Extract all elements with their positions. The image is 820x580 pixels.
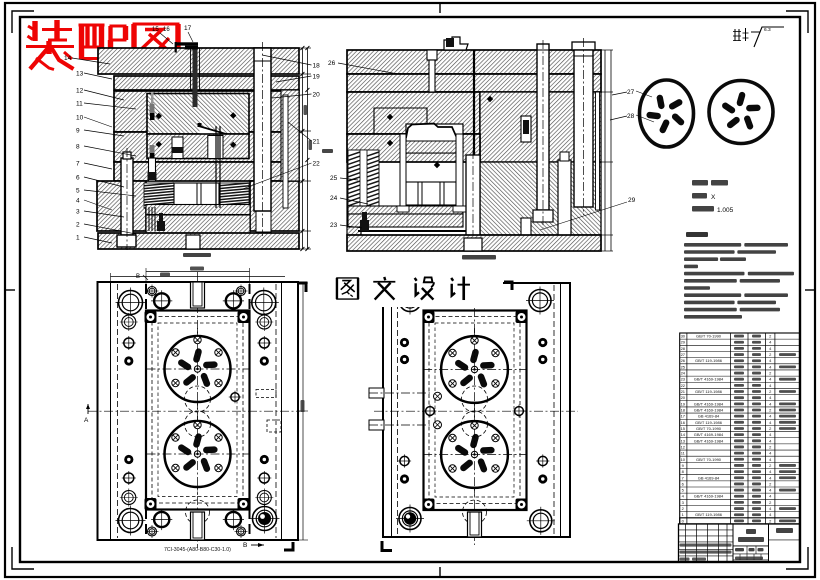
svg-text:14: 14 xyxy=(681,432,686,437)
svg-text:10: 10 xyxy=(681,457,686,462)
svg-text:28: 28 xyxy=(627,113,635,120)
svg-text:GB 4169-84: GB 4169-84 xyxy=(698,414,720,419)
svg-text:18: 18 xyxy=(313,63,321,70)
svg-text:17: 17 xyxy=(681,414,686,419)
svg-text:8: 8 xyxy=(76,144,80,151)
svg-text:10: 10 xyxy=(76,115,84,122)
svg-text:GB/T 119-1986: GB/T 119-1986 xyxy=(695,389,723,394)
svg-text:11: 11 xyxy=(76,101,83,108)
svg-text:GB/T 119-1986: GB/T 119-1986 xyxy=(695,420,723,425)
svg-text:GB/T 119-1986: GB/T 119-1986 xyxy=(695,358,723,363)
svg-text:GB 4169-84: GB 4169-84 xyxy=(698,475,720,480)
svg-text:A: A xyxy=(84,417,89,424)
svg-text:B: B xyxy=(136,274,140,280)
svg-text:28: 28 xyxy=(681,346,686,351)
svg-text:GB/T 4169-1984: GB/T 4169-1984 xyxy=(694,438,724,443)
svg-text:26: 26 xyxy=(681,358,686,363)
svg-text:29: 29 xyxy=(681,340,686,345)
svg-text:X: X xyxy=(711,194,716,201)
svg-text:GB/T 4169-1984: GB/T 4169-1984 xyxy=(694,494,724,499)
svg-text:24: 24 xyxy=(330,195,338,202)
svg-text:GB/T 119-1986: GB/T 119-1986 xyxy=(695,512,723,517)
svg-text:1.005: 1.005 xyxy=(717,207,734,214)
svg-text:GB/T 70-1990: GB/T 70-1990 xyxy=(696,457,722,462)
svg-text:27: 27 xyxy=(681,352,686,357)
svg-text:16: 16 xyxy=(163,27,170,33)
svg-text:15: 15 xyxy=(681,426,686,431)
svg-text:13: 13 xyxy=(76,71,84,78)
svg-text:GB/T 4169-1984: GB/T 4169-1984 xyxy=(694,432,724,437)
svg-text:21: 21 xyxy=(681,389,686,394)
svg-text:7: 7 xyxy=(76,161,80,168)
svg-text:18: 18 xyxy=(681,408,686,413)
svg-text:6.3: 6.3 xyxy=(764,27,771,33)
svg-text:27: 27 xyxy=(627,89,635,96)
svg-text:GB/T 4169-1984: GB/T 4169-1984 xyxy=(694,377,724,382)
svg-text:29: 29 xyxy=(628,197,636,204)
svg-text:22: 22 xyxy=(681,383,686,388)
svg-text:13: 13 xyxy=(681,438,686,443)
svg-text:GB/T 70-1990: GB/T 70-1990 xyxy=(696,426,722,431)
svg-text:14: 14 xyxy=(64,55,72,62)
svg-text:1: 1 xyxy=(76,235,80,242)
svg-text:4: 4 xyxy=(76,198,80,205)
svg-text:5: 5 xyxy=(76,188,80,195)
svg-text:12: 12 xyxy=(681,444,686,449)
svg-text:25: 25 xyxy=(681,364,686,369)
svg-text:22: 22 xyxy=(313,161,321,168)
svg-text:19: 19 xyxy=(681,401,686,406)
svg-text:B: B xyxy=(243,542,247,549)
svg-text:16: 16 xyxy=(681,420,686,425)
svg-text:25: 25 xyxy=(330,175,338,182)
svg-text:23: 23 xyxy=(330,222,338,229)
svg-text:17: 17 xyxy=(184,25,192,32)
svg-text:23: 23 xyxy=(681,377,686,382)
svg-text:24: 24 xyxy=(681,371,686,376)
svg-text:12: 12 xyxy=(76,88,84,95)
svg-text:15: 15 xyxy=(152,27,159,33)
svg-text:30: 30 xyxy=(681,334,686,339)
svg-text:20: 20 xyxy=(313,92,321,99)
svg-text:26: 26 xyxy=(328,60,336,67)
svg-text:9: 9 xyxy=(76,128,80,135)
svg-text:7CI-3045-(A80-B80-C30-1.0): 7CI-3045-(A80-B80-C30-1.0) xyxy=(164,547,231,553)
svg-text:GB/T 4169-1984: GB/T 4169-1984 xyxy=(694,408,724,413)
svg-text:3: 3 xyxy=(76,209,80,216)
svg-text:6: 6 xyxy=(76,175,80,182)
svg-text:20: 20 xyxy=(681,395,686,400)
svg-text:GB/T 70-1990: GB/T 70-1990 xyxy=(696,334,722,339)
svg-text:19: 19 xyxy=(313,74,321,81)
svg-text:21: 21 xyxy=(313,139,321,146)
svg-text:2: 2 xyxy=(76,222,80,229)
svg-text:GB/T 4169-1984: GB/T 4169-1984 xyxy=(694,401,724,406)
